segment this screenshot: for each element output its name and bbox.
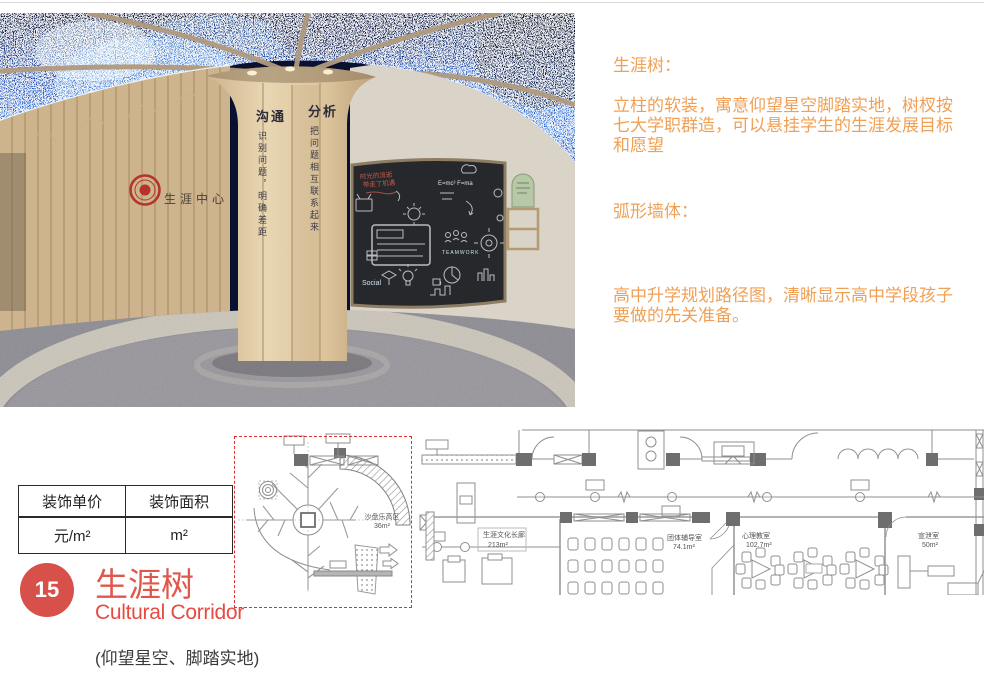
recessed-door [0,153,26,311]
plan-room-area: 213m² [488,542,509,549]
spec-value-area: m² [126,517,233,554]
svg-text:Social: Social [362,280,382,287]
page-tagline: (仰望星空、脚踏实地) [95,644,259,669]
svg-text:E=mc² F=ma: E=mc² F=ma [438,181,473,187]
plan-psychology-classroom: 心理教室 102.7m² [712,512,888,595]
plan-highlight-dashed-box [234,436,412,608]
annotation-wall-heading: 弧形墙体： [613,202,981,222]
annotation-block: 生涯树： 立柱的软装，寓意仰望星空脚踏实地，树杈按 七大学职群造，可以悬挂学生的… [613,36,981,346]
plan-venting-room: 宣泄室 50m² [878,512,984,595]
index-number: 15 [35,577,59,603]
plan-room-label: 团体辅导室 [667,533,702,542]
annotation-tree-heading: 生涯树： [613,56,981,76]
column-sign-heading: 分析 [308,101,338,120]
career-center-render-photo: 生涯中心 时光的流逝 带走了机遇 [0,13,575,407]
column-sign-caption: 把问题相互联系起来 [308,126,321,301]
plan-room-label: 心理教室 [742,531,770,540]
plan-group-counseling-room: 团体辅导室 74.1m² [560,512,730,595]
column-sign-heading: 沟通 [256,106,286,125]
column-sign-analysis: 分析 把问题相互联系起来 [308,101,338,301]
plan-room-area: 74.1m² [673,544,695,551]
column-sign-communication: 沟通 识别问题，明确差距 [256,106,286,291]
column-sign-caption: 识别问题，明确差距 [256,131,269,291]
plan-chair-grid [568,538,663,594]
plan-room-area: 50m² [922,542,939,549]
spec-header-area: 装饰面积 [126,486,233,518]
wall-sign-text: 生涯中心 [164,191,228,206]
spec-header-unit-price: 装饰单价 [19,486,126,518]
annotation-tree-body: 立柱的软装，寓意仰望星空脚踏实地，树杈按 七大学职群造，可以悬挂学生的生涯发展目… [613,96,981,156]
page-top-divider [0,2,984,3]
decoration-spec-table: 装饰单价 装饰面积 元/m² m² [18,485,233,554]
plan-room-label: 宣泄室 [918,531,939,540]
page-title: 生涯树 [95,558,194,606]
plan-bottom-rooms: 团体辅导室 74.1m² 心理教室 102.7m² [426,512,984,595]
plan-top-wall [422,430,984,524]
render-scene: 生涯中心 时光的流逝 带走了机遇 [0,13,575,407]
slide-page: 生涯中心 时光的流逝 带走了机遇 [0,0,984,700]
annotation-wall-body: 高中升学规划路径图，清晰显示高中学段孩子 要做的先关准备。 [613,286,981,326]
svg-text:TEAMWORK: TEAMWORK [442,250,479,256]
plan-room-label: 生涯文化长廊 [483,530,525,539]
spec-value-unit-price: 元/m² [19,517,126,554]
page-subtitle: Cultural Corridor [95,601,244,625]
school-seal-logo [131,176,160,205]
index-badge: 15 [20,563,74,617]
